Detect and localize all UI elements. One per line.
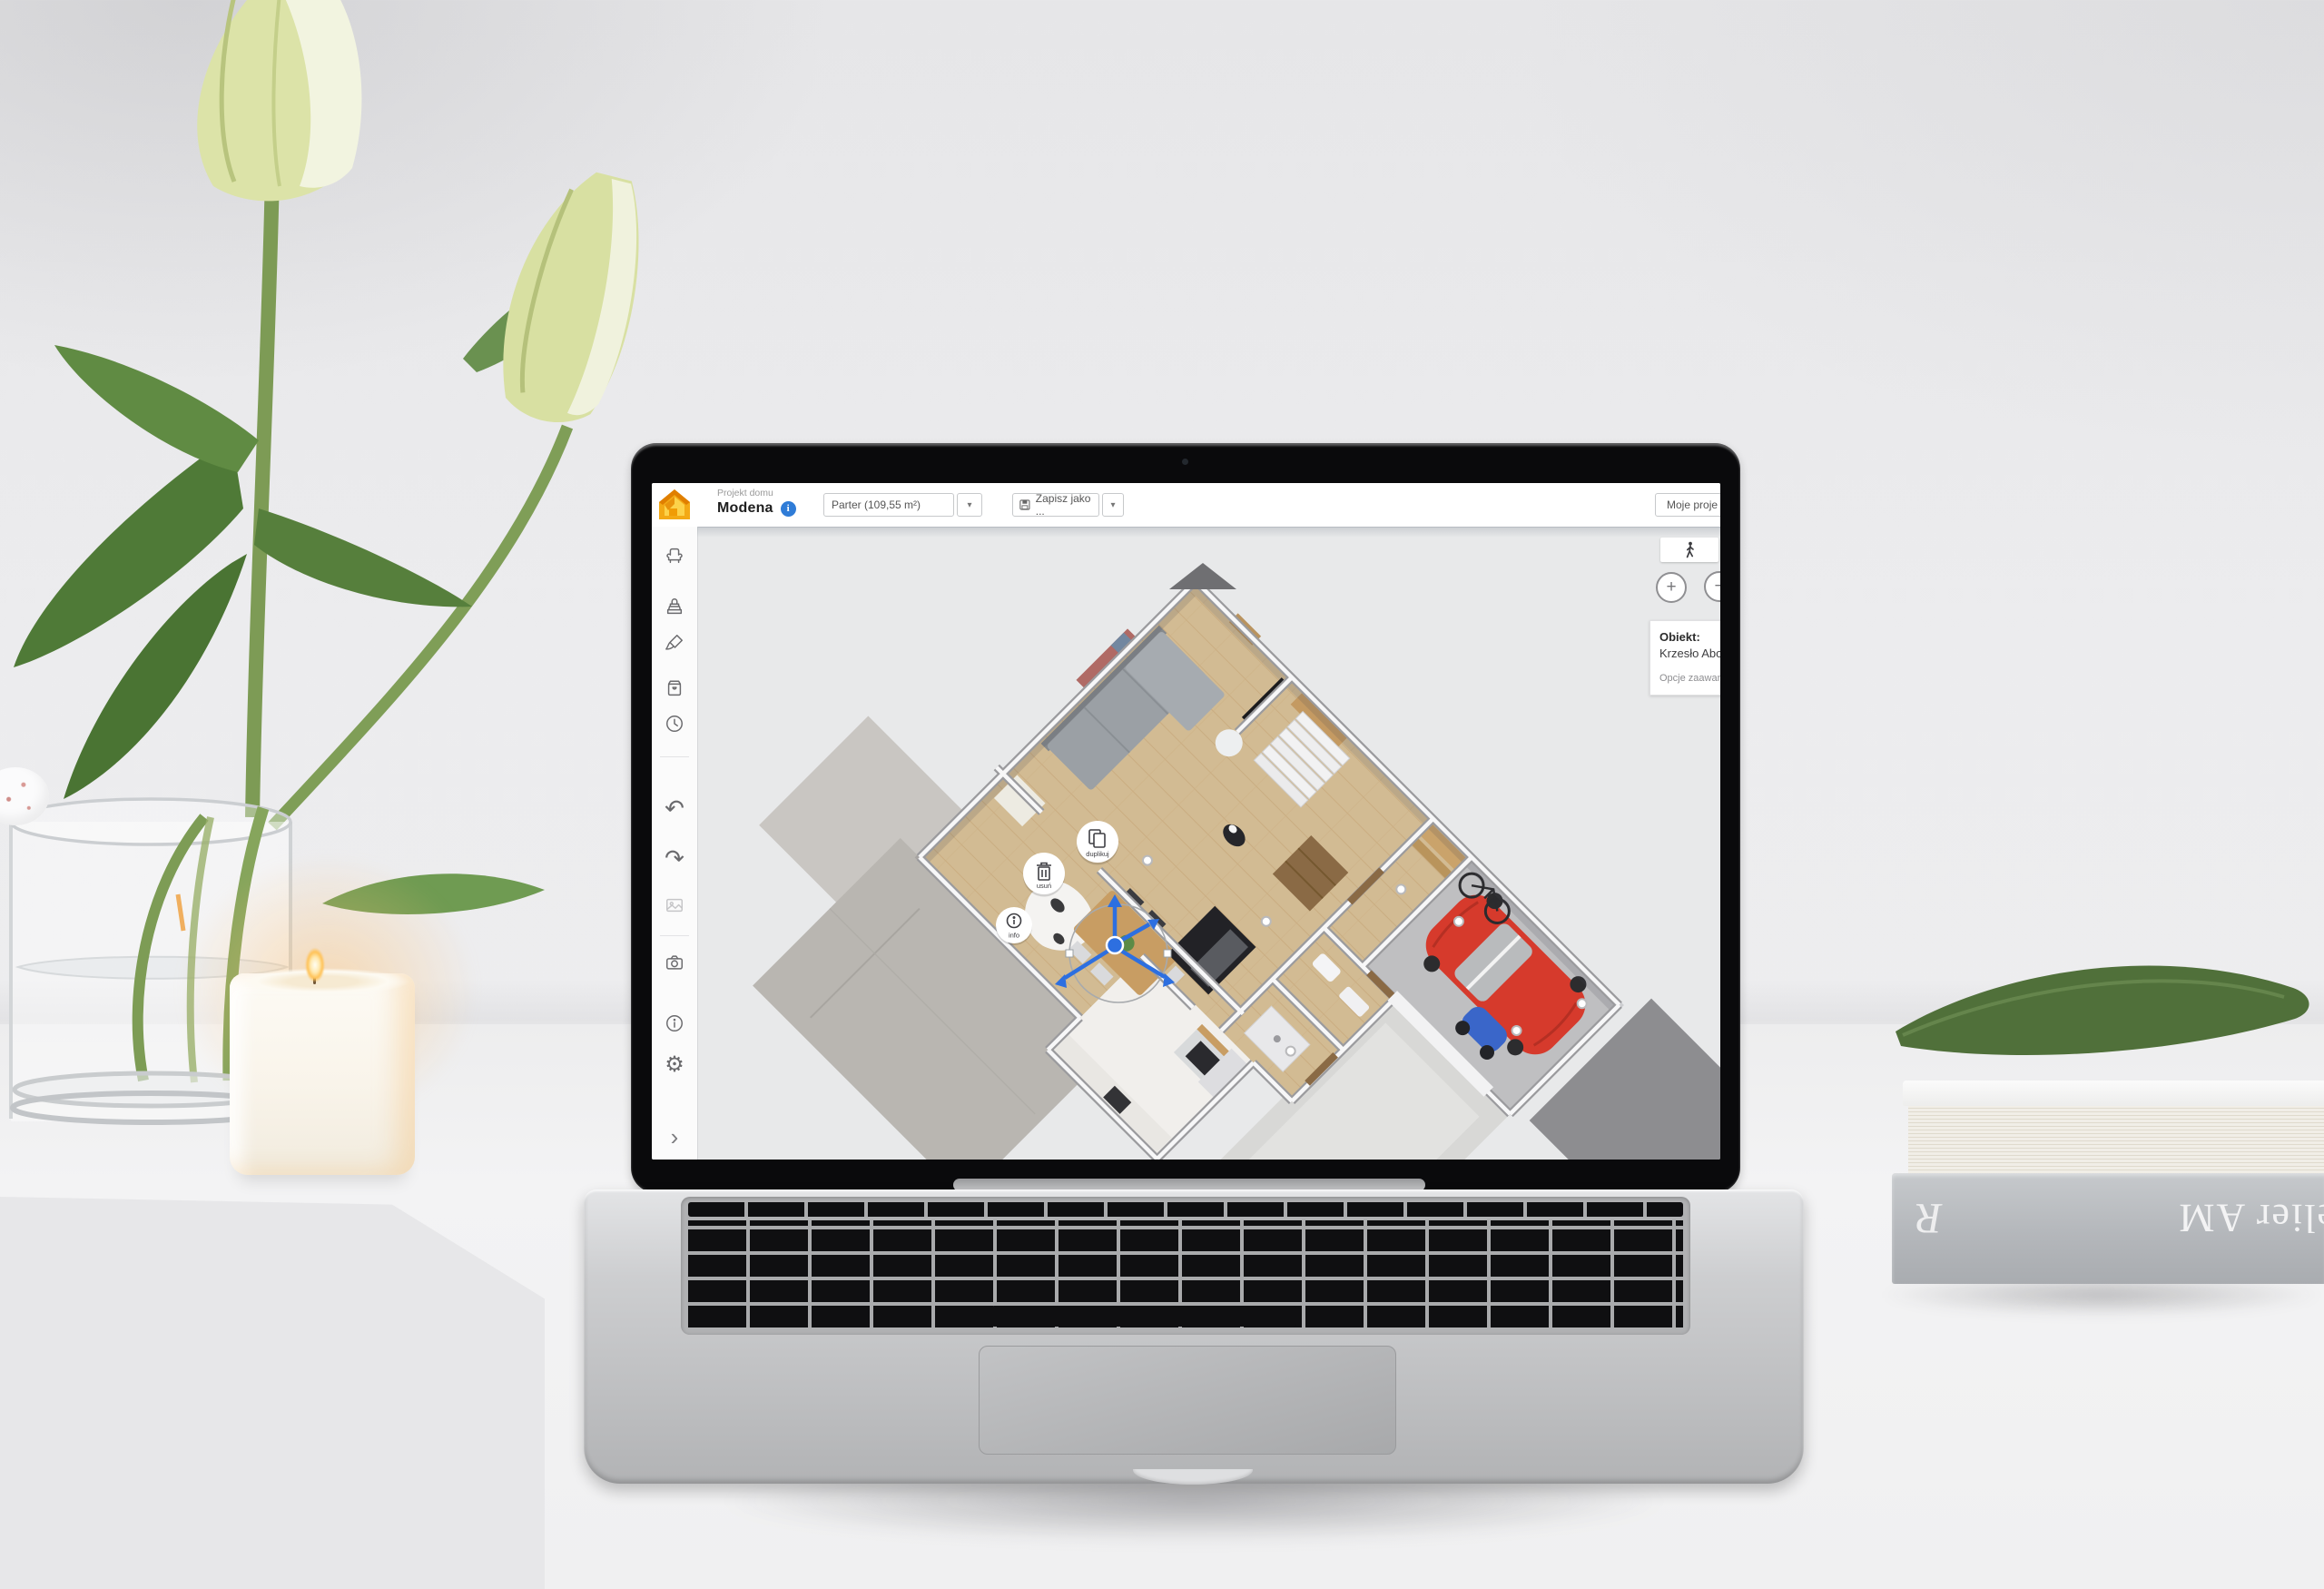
project-name: Modena	[717, 501, 773, 516]
undo-icon[interactable]: ↶	[652, 796, 697, 820]
candle	[230, 973, 415, 1175]
walk-person-icon	[1683, 541, 1697, 559]
walk-mode-button[interactable]	[1660, 538, 1718, 562]
product-box-icon[interactable]	[652, 678, 697, 698]
lily-bud-large	[197, 0, 361, 201]
object-panel: Obiekt: Krzesło Abo Opcje zaawansow	[1649, 620, 1720, 696]
project-label: Projekt domu	[717, 489, 796, 498]
gray-book: R Atelier AM	[1892, 1173, 2324, 1284]
info-icon[interactable]	[652, 1013, 697, 1033]
history-clock-icon[interactable]	[652, 714, 697, 734]
action-button-info[interactable]: info	[996, 907, 1032, 945]
advanced-options-link[interactable]: Opcje zaawansow	[1659, 673, 1720, 684]
save-as-button[interactable]: Zapisz jako ...	[1012, 493, 1099, 517]
my-projects-button[interactable]: Moje proje	[1655, 493, 1720, 517]
spacebar-key	[991, 1306, 1296, 1327]
sidebar-divider	[660, 756, 689, 757]
white-book-pages	[1908, 1106, 2324, 1173]
paintbrush-icon[interactable]	[652, 633, 697, 653]
save-floppy-icon	[1019, 498, 1030, 511]
object-panel-title: Obiekt:	[1659, 630, 1720, 644]
rotated-house-group	[697, 527, 1720, 1160]
action-button-delete[interactable]: usuń	[1023, 853, 1065, 897]
svg-text:info: info	[1009, 932, 1019, 940]
tool-sidebar: ↶ ↷ ⚙ ›	[652, 527, 698, 1160]
collapse-chevron-icon[interactable]: ›	[652, 1125, 697, 1149]
camera-icon[interactable]	[652, 952, 697, 972]
furniture-chair-icon[interactable]	[652, 546, 697, 566]
svg-text:duplikuj: duplikuj	[1086, 850, 1109, 858]
sidebar-divider	[660, 935, 689, 936]
book-spine-title: Atelier AM	[2088, 1195, 2324, 1241]
svg-text:usuń: usuń	[1037, 882, 1051, 890]
lily-bud-small	[485, 160, 662, 435]
gizmo-center-handle[interactable]	[1107, 937, 1123, 953]
redo-icon[interactable]: ↷	[652, 846, 697, 870]
object-name: Krzesło Abo	[1659, 646, 1720, 660]
zoom-in-button[interactable]: +	[1656, 572, 1687, 603]
settings-gear-icon[interactable]: ⚙	[652, 1054, 697, 1076]
roof-peak	[1169, 563, 1236, 589]
app-logo-house-icon[interactable]	[656, 487, 693, 523]
green-leaf	[1894, 941, 2324, 1084]
trackpad	[979, 1346, 1396, 1455]
build-stamp-icon[interactable]	[652, 597, 697, 617]
planner-app-screen: Projekt domu Modena i Parter (109,55 m²)…	[652, 483, 1720, 1160]
webcam-dot	[1182, 459, 1188, 465]
keyboard-function-row	[688, 1202, 1683, 1217]
book-monogram: R	[1915, 1193, 1942, 1243]
photo-scene: { "topbar": { "project_label": "Projekt …	[0, 0, 2324, 1589]
gallery-icon[interactable]	[652, 895, 697, 915]
app-toolbar: Projekt domu Modena i Parter (109,55 m²)…	[652, 483, 1720, 528]
save-as-caret-icon[interactable]: ▾	[1102, 493, 1124, 517]
white-book-cover	[1903, 1081, 2324, 1106]
3d-viewport[interactable]: duplikuj usuń	[697, 527, 1720, 1160]
toolbar-shadow	[697, 527, 1720, 538]
floor-selector[interactable]: Parter (109,55 m²)	[823, 493, 954, 517]
project-info-icon[interactable]: i	[781, 501, 796, 517]
table-corner-floor	[0, 1197, 545, 1589]
action-button-duplicate[interactable]: duplikuj	[1077, 821, 1118, 865]
floor-plan-3d-view[interactable]: duplikuj usuń	[697, 527, 1720, 1160]
floor-selector-caret-icon[interactable]: ▾	[957, 493, 982, 517]
